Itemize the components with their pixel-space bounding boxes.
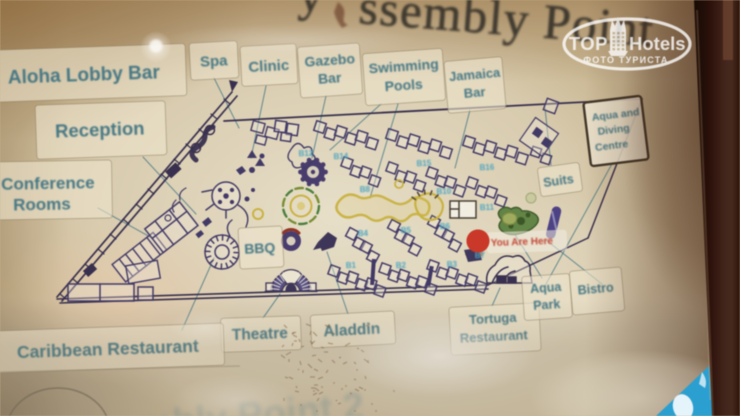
svg-text:Hotels: Hotels bbox=[629, 33, 686, 54]
svg-text:ФОТО ТУРИСТА: ФОТО ТУРИСТА bbox=[583, 55, 668, 65]
svg-text:TOP: TOP bbox=[569, 33, 608, 54]
